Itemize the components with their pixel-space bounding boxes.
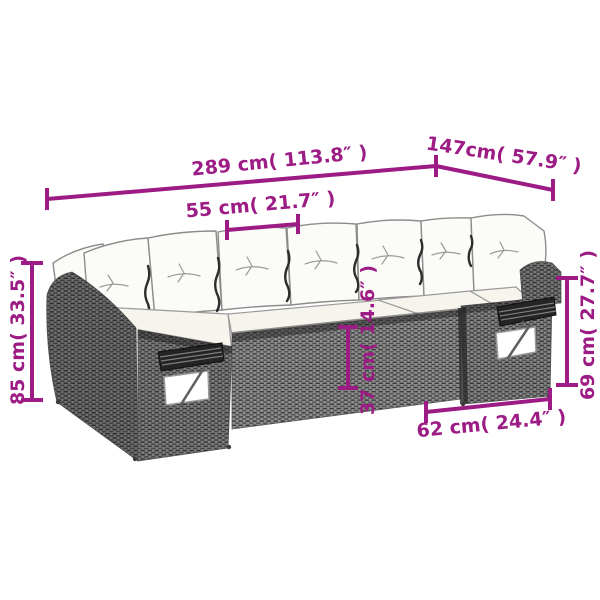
arm-height-label: 69 cm( 27.7″ ) bbox=[577, 250, 599, 400]
back-cushion-4 bbox=[287, 223, 359, 305]
sofa-dimension-figure: 289 cm( 113.8″ ) 147cm( 57.9″ ) 55 cm( 2… bbox=[0, 0, 600, 600]
side-depth-label: 147cm( 57.9″ ) bbox=[425, 133, 583, 178]
left-window-opening bbox=[164, 371, 209, 405]
product-dimension-diagram: 289 cm( 113.8″ ) 147cm( 57.9″ ) 55 cm( 2… bbox=[0, 0, 600, 600]
seat-width-label: 55 cm( 21.7″ ) bbox=[185, 188, 336, 223]
back-cushion-right-corner bbox=[421, 218, 474, 296]
dim-side-depth: 147cm( 57.9″ ) bbox=[425, 133, 583, 201]
back-height-label: 85 cm( 33.5″ ) bbox=[7, 255, 29, 405]
seat-height-label: 37 cm( 14.6″ ) bbox=[357, 265, 379, 415]
dim-back-height: 85 cm( 33.5″ ) bbox=[7, 255, 43, 405]
back-cushion-2 bbox=[148, 231, 222, 318]
dim-arm-height: 69 cm( 27.7″ ) bbox=[556, 250, 599, 400]
